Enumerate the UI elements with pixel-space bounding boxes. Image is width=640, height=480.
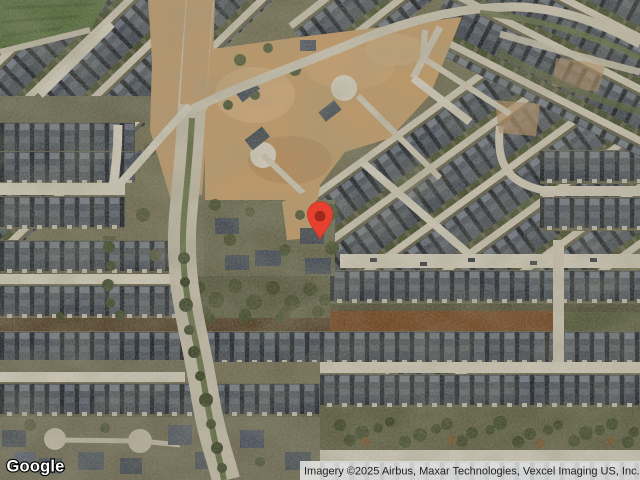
svg-text:Google: Google — [7, 458, 65, 476]
svg-text:Imagery ©2025 Airbus, Maxar Te: Imagery ©2025 Airbus, Maxar Technologies… — [304, 466, 640, 478]
